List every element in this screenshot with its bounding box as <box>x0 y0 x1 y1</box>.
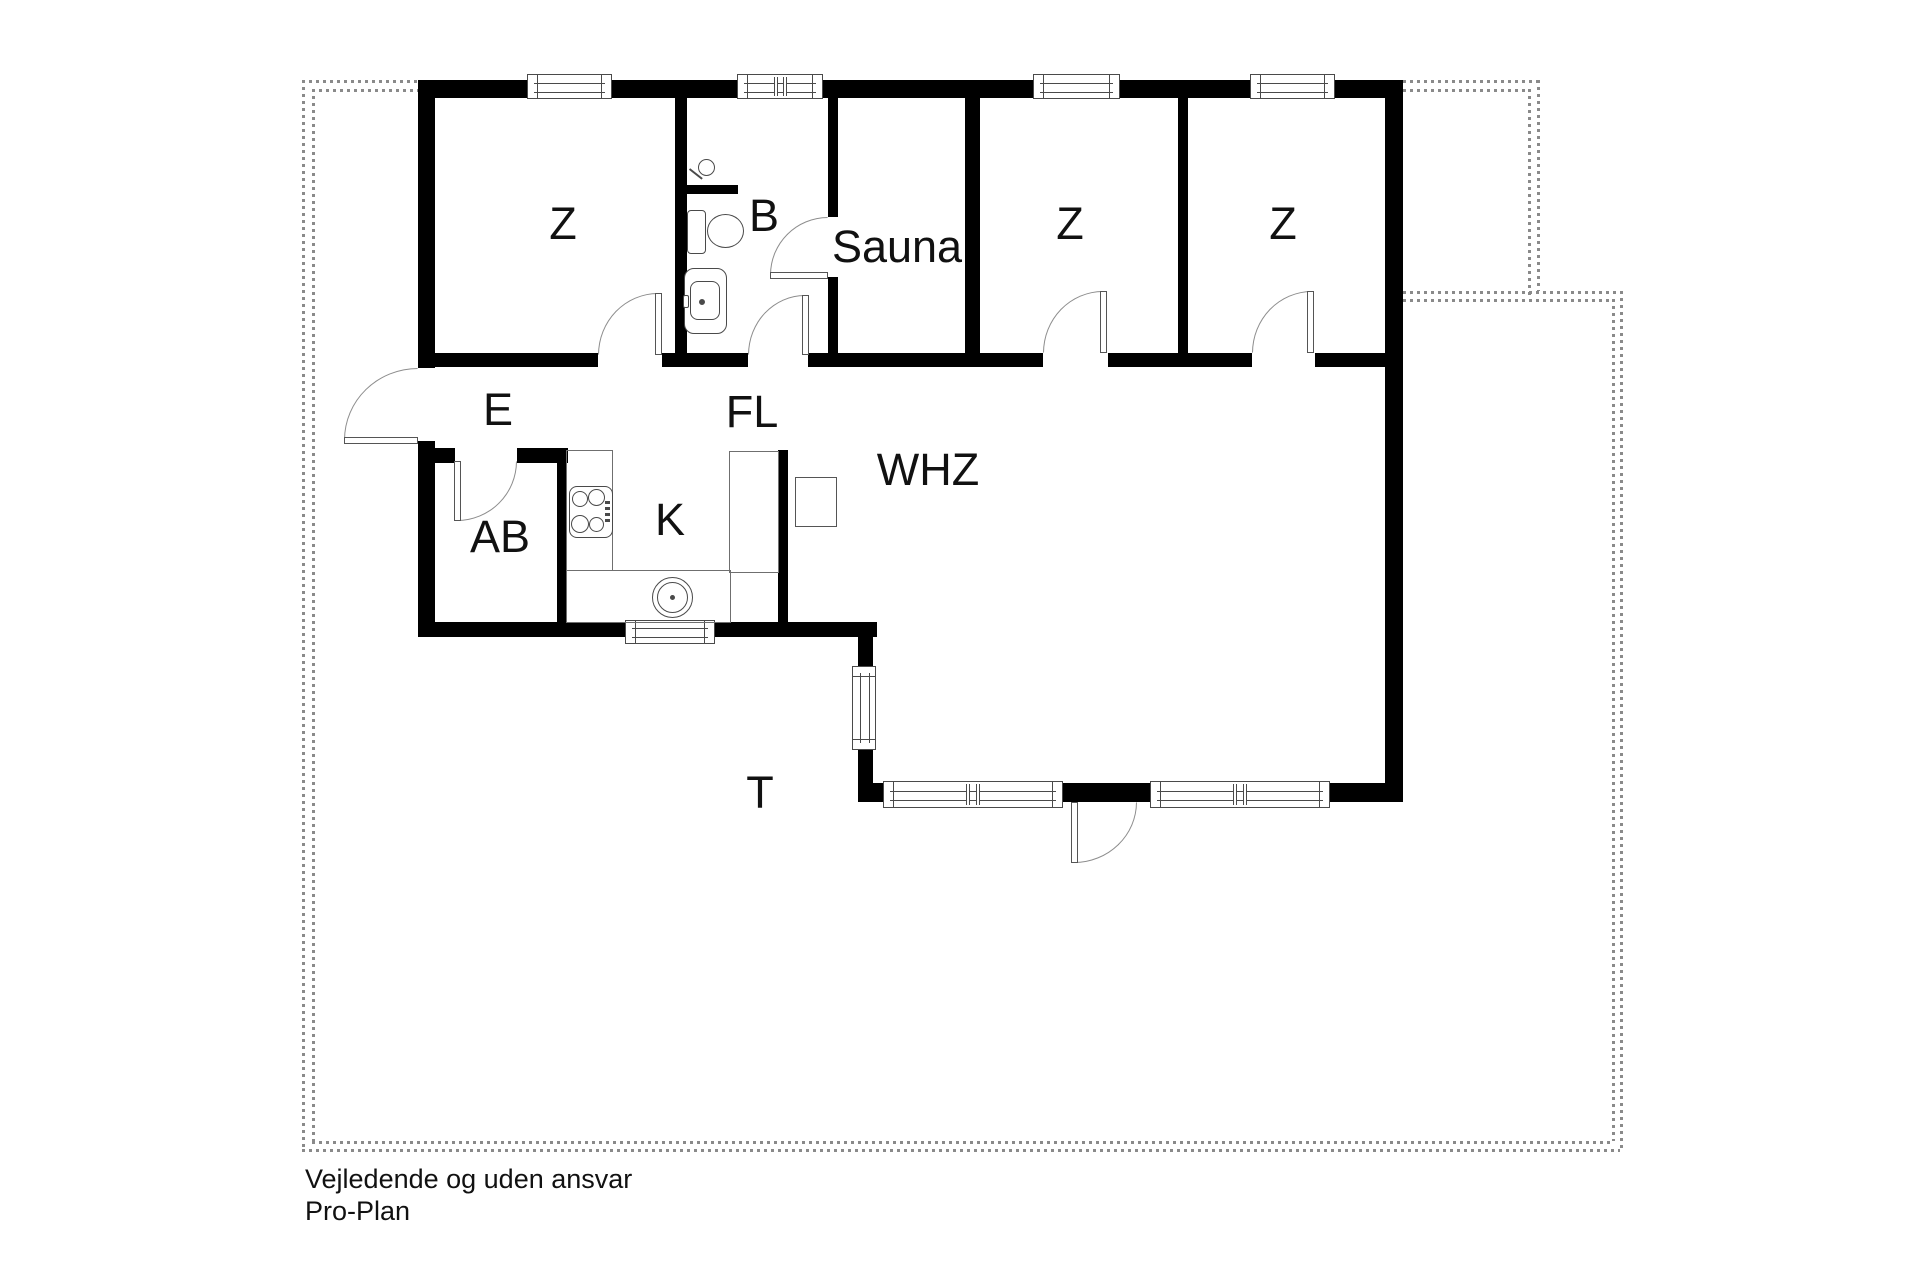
bedroom-1-door-arc <box>598 293 658 355</box>
room-label-terrace: T <box>746 767 774 819</box>
room-label-bedroom-1: Z <box>549 198 577 250</box>
window-whz-side <box>852 666 876 750</box>
interior-wall <box>1315 353 1403 367</box>
terrace-boundary-line <box>302 80 305 1149</box>
terrace-boundary-line <box>1403 89 1528 92</box>
wood-stove <box>795 477 837 527</box>
window-bathroom-sauna <box>737 74 823 99</box>
stove-burner <box>572 491 588 507</box>
exterior-wall-left-lower <box>418 441 435 637</box>
toilet-bowl <box>707 214 744 248</box>
wall-ab-top-left <box>418 448 455 463</box>
bedroom-1-door-leaf <box>655 293 662 355</box>
window-whz-left <box>883 781 1063 808</box>
window-bedroom-2 <box>1033 74 1120 99</box>
sauna-door-leaf <box>770 272 828 279</box>
room-label-utility: AB <box>470 511 530 563</box>
room-label-kitchen: K <box>655 494 685 546</box>
window-kitchen <box>625 620 715 644</box>
bathtub-inner <box>690 281 720 320</box>
terrace-boundary-line <box>1528 89 1531 299</box>
bedroom-3-door-arc <box>1252 291 1312 353</box>
window-bedroom-1 <box>527 74 612 99</box>
terrace-boundary-line <box>1620 291 1623 1149</box>
bedroom-2-door-arc <box>1043 291 1103 353</box>
entrance-door-arc <box>344 368 418 440</box>
shower-icon <box>698 159 715 176</box>
room-label-sauna: Sauna <box>832 221 962 273</box>
floor-plan-canvas: Z B Sauna Z Z E FL AB K WHZ T Vejledende… <box>0 0 1920 1280</box>
terrace-boundary-line <box>302 1149 1620 1152</box>
room-label-living-room: WHZ <box>877 444 979 496</box>
footer-disclaimer: Vejledende og uden ansvar <box>305 1163 632 1195</box>
room-label-bedroom-3: Z <box>1269 198 1297 250</box>
room-label-bedroom-2: Z <box>1056 198 1084 250</box>
kitchen-sink-drain <box>670 595 675 600</box>
bathtub-tap <box>683 295 689 308</box>
wall-z2-z3 <box>1178 97 1188 357</box>
toilet-tank <box>687 210 706 254</box>
terrace-boundary-line <box>312 89 315 1141</box>
terrace-boundary-line <box>1403 80 1537 83</box>
wall-bathroom-sauna-upper <box>828 97 838 217</box>
wall-sauna-z2 <box>965 97 980 357</box>
interior-wall <box>418 353 598 367</box>
terrace-boundary-line <box>1537 80 1540 291</box>
entrance-door-leaf <box>344 437 418 444</box>
kitchen-counter-bottom <box>566 570 731 623</box>
kitchen-counter-right <box>729 451 779 573</box>
terrace-door-arc <box>1074 802 1137 863</box>
stove-burner <box>588 489 605 506</box>
stove-knobs <box>605 501 610 523</box>
room-label-entrance: E <box>483 384 513 436</box>
footer-brand: Pro-Plan <box>305 1195 410 1227</box>
bathroom-door-leaf <box>802 295 809 355</box>
bathroom-door-arc <box>748 295 805 355</box>
terrace-boundary-line <box>302 80 418 83</box>
room-label-bathroom: B <box>749 190 779 242</box>
wall-kitchen-whz <box>778 450 788 637</box>
room-label-hallway: FL <box>726 386 779 438</box>
bathtub-drain <box>699 299 705 305</box>
terrace-boundary-line <box>1612 299 1615 1141</box>
stove-burner <box>589 517 604 532</box>
interior-wall <box>808 353 1043 367</box>
window-bedroom-3 <box>1250 74 1335 99</box>
bedroom-3-door-leaf <box>1307 291 1314 353</box>
window-whz-right <box>1150 781 1330 808</box>
shower-partition-wall <box>687 185 738 194</box>
exterior-wall-right <box>1385 80 1403 802</box>
terrace-boundary-line <box>312 89 418 92</box>
bedroom-2-door-leaf <box>1100 291 1107 353</box>
ab-door-leaf <box>454 461 461 521</box>
wall-bathroom-sauna-lower <box>828 277 838 357</box>
exterior-wall-left-upper <box>418 80 435 368</box>
terrace-boundary-line <box>312 1141 1612 1144</box>
terrace-door-leaf <box>1071 802 1078 863</box>
stove-burner <box>571 515 589 533</box>
terrace-boundary-line <box>1403 291 1620 294</box>
terrace-boundary-line <box>1403 299 1612 302</box>
